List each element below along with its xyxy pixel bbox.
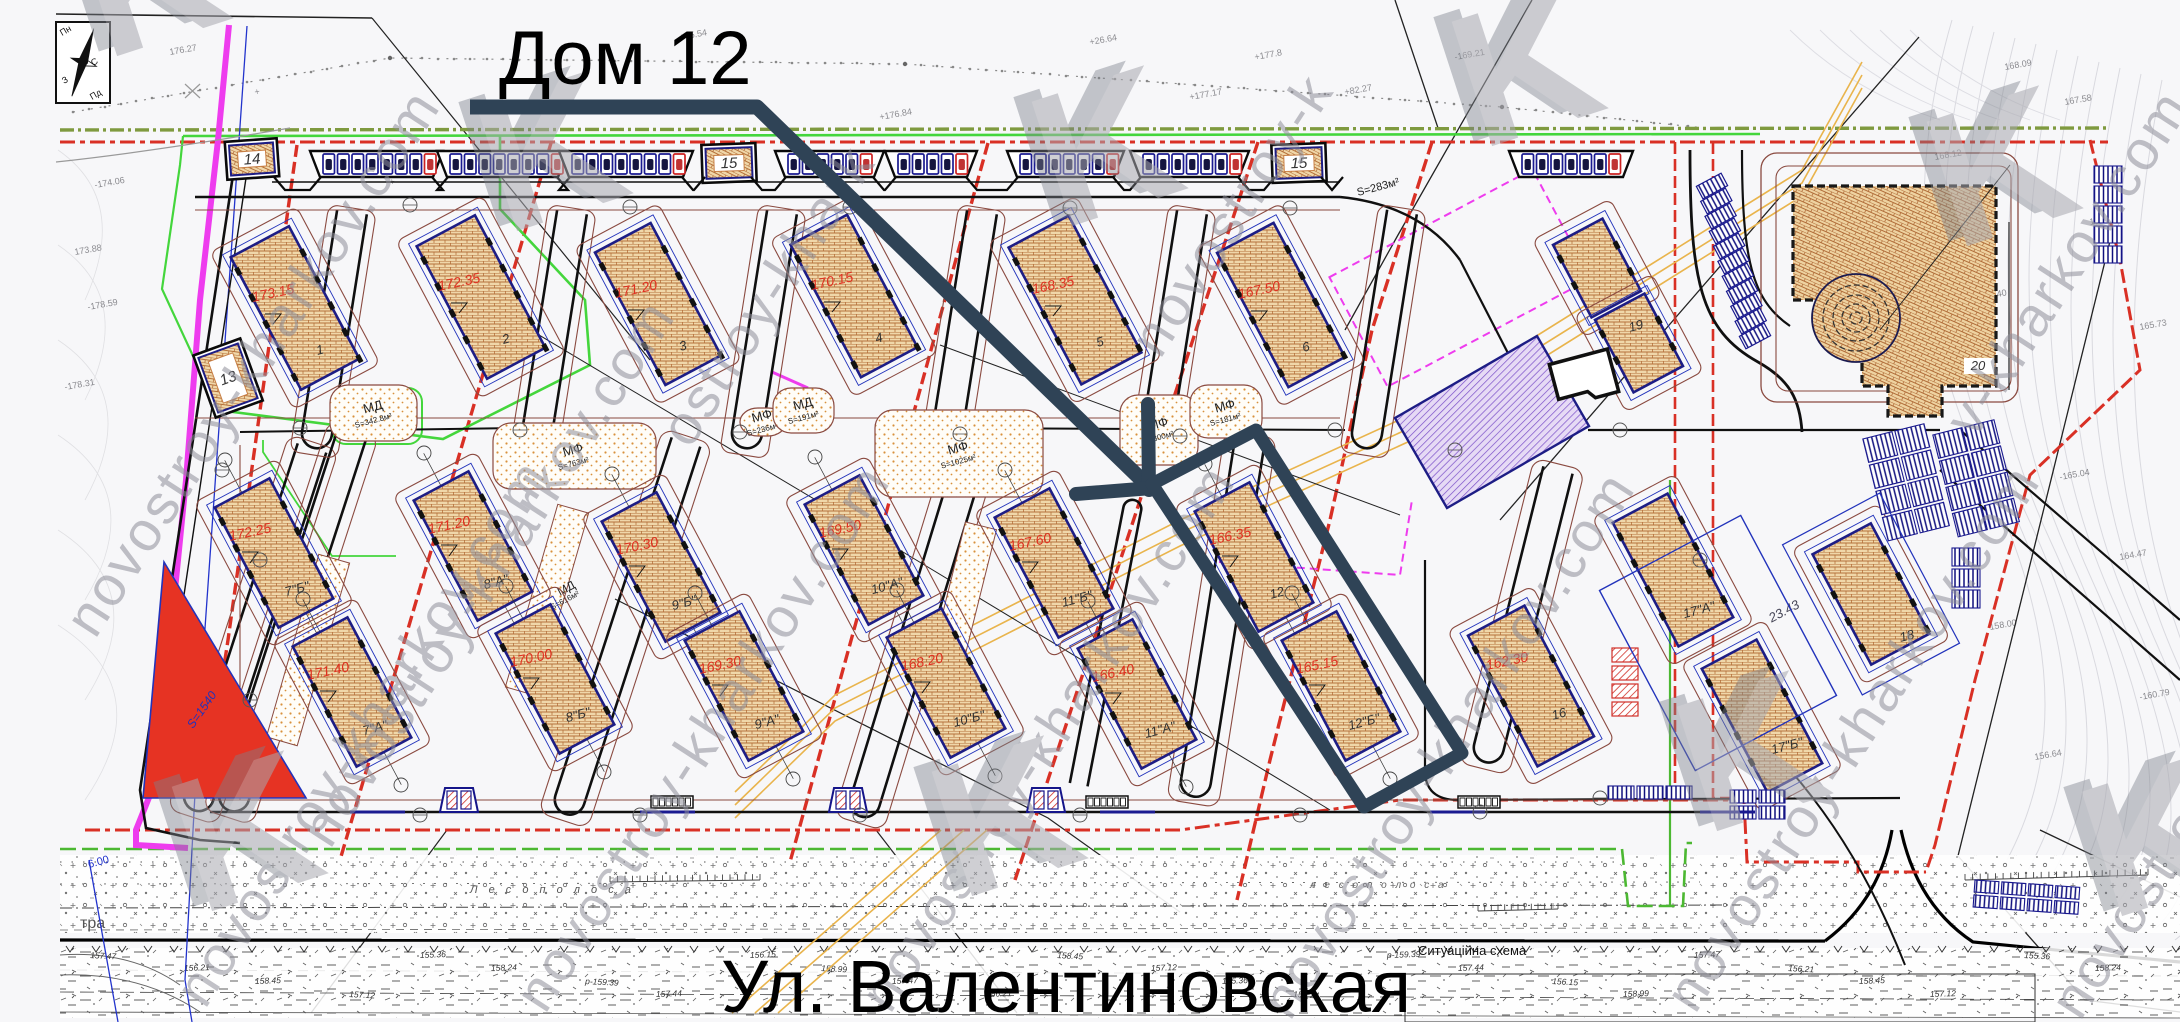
svg-text:157.44: 157.44 bbox=[656, 988, 683, 999]
svg-text:15: 15 bbox=[720, 155, 738, 173]
svg-text:155.36: 155.36 bbox=[420, 949, 447, 960]
svg-text:Дом 12: Дом 12 bbox=[499, 16, 752, 101]
svg-text:Ул. Валентиновская: Ул. Валентиновская bbox=[721, 945, 1411, 1022]
svg-text:157.44: 157.44 bbox=[1458, 962, 1485, 973]
svg-text:157.12: 157.12 bbox=[1930, 988, 1957, 999]
svg-text:158.45: 158.45 bbox=[255, 975, 282, 986]
svg-text:157.12: 157.12 bbox=[349, 989, 376, 1000]
svg-text:156.21: 156.21 bbox=[1788, 963, 1815, 974]
svg-text:Ситуаційна схема: Ситуаційна схема bbox=[1418, 943, 1527, 958]
svg-text:14: 14 bbox=[243, 150, 261, 168]
svg-text:158.45: 158.45 bbox=[1859, 975, 1886, 986]
svg-text:155.36: 155.36 bbox=[2024, 950, 2051, 961]
svg-text:156.15: 156.15 bbox=[1552, 976, 1579, 987]
svg-text:157.47: 157.47 bbox=[90, 950, 117, 961]
svg-text:р-159.39: р-159.39 bbox=[584, 976, 619, 988]
svg-text:158.99: 158.99 bbox=[1623, 988, 1650, 999]
